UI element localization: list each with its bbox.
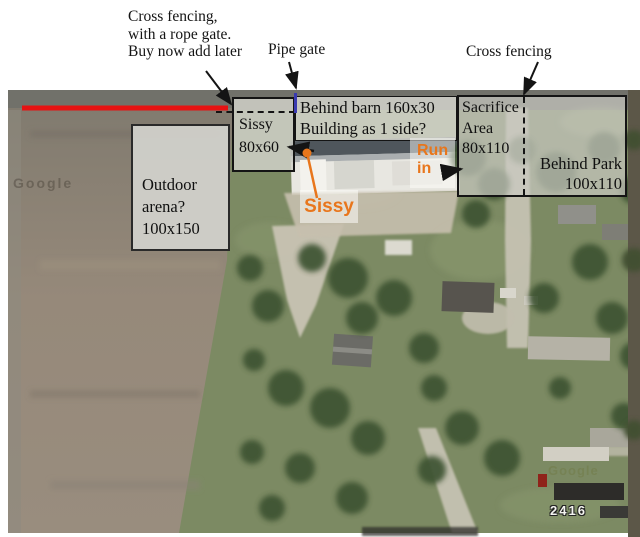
pipe-gate-marker — [294, 93, 297, 113]
google-watermark: Google — [13, 175, 73, 191]
sissy-paddock-label: Sissy 80x60 — [239, 113, 279, 159]
sacrifice-behind-park-box: Sacrifice Area 80x110 Behind Park 100x11… — [457, 95, 627, 197]
right-roadside-strip — [628, 90, 640, 537]
cross-fencing-dashed-line — [523, 97, 525, 195]
note-line: Cross fencing, — [128, 8, 242, 26]
annotated-aerial-map: Google Google 2416 Cross fencing, with a… — [0, 0, 640, 537]
bottom-label-smudge — [362, 527, 478, 536]
note-pipe-gate: Pipe gate — [268, 41, 325, 59]
google-watermark-2: Google — [548, 463, 599, 478]
satellite-photo — [0, 0, 640, 537]
note-cross-fencing-left: Cross fencing, with a rope gate. Buy now… — [128, 8, 242, 61]
sacrifice-area-label: Sacrifice Area 80x110 — [462, 98, 519, 160]
note-line: Buy now add later — [128, 43, 242, 61]
note-cross-fencing-right: Cross fencing — [466, 43, 552, 61]
outdoor-arena-label: Outdoor arena? 100x150 — [142, 174, 200, 240]
rope-gate-dashed-line — [216, 111, 295, 113]
behind-barn-label: Behind barn 160x30 Building as 1 side? — [300, 97, 435, 139]
note-line: with a rope gate. — [128, 26, 242, 44]
outdoor-arena-box: Outdoor arena? 100x150 — [131, 124, 230, 251]
run-in-callout-label: Run in — [410, 138, 455, 188]
note-line: Cross fencing — [466, 43, 552, 61]
behind-park-label: Behind Park 100x110 — [540, 154, 622, 193]
house-number-label: 2416 — [550, 503, 587, 518]
sissy-paddock-box: Sissy 80x60 — [232, 97, 295, 172]
behind-barn-box: Behind barn 160x30 Building as 1 side? — [295, 96, 457, 141]
sissy-callout-label: Sissy — [300, 190, 358, 223]
note-line: Pipe gate — [268, 41, 325, 59]
field-shoulder — [8, 110, 21, 533]
